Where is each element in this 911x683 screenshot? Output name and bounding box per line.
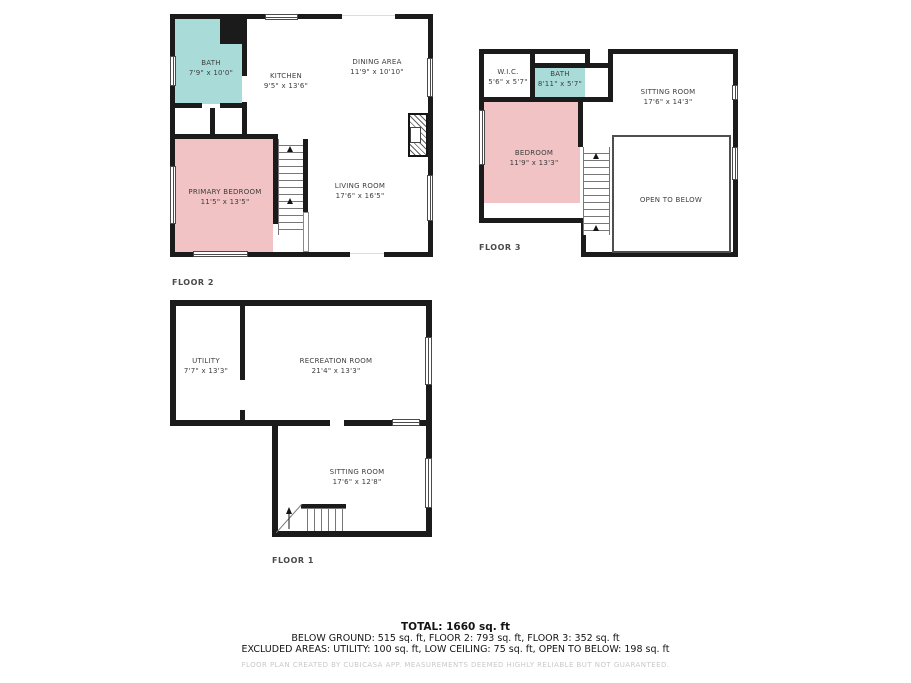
door-opening (240, 380, 245, 410)
room-name: LIVING ROOM (335, 182, 385, 190)
window (479, 110, 485, 165)
room-dims: 5'6" x 5'7" (488, 78, 527, 86)
stair-direction-arrow (593, 225, 599, 231)
window (392, 419, 420, 426)
wall-segment (170, 300, 176, 426)
stair-winder-and-arrow (276, 504, 306, 533)
door-opening (242, 76, 247, 102)
room-dims: 17'6" x 12'8" (333, 478, 382, 486)
creator-credit: FLOOR PLAN CREATED BY CUBICASA APP. MEAS… (0, 661, 911, 669)
wall-opening (350, 252, 384, 257)
room-dims: 17'6" x 16'5" (336, 192, 385, 200)
room-label-dining-area: DINING AREA 11'9" x 10'10" (350, 57, 404, 77)
door-opening (330, 420, 344, 426)
wall-segment (479, 218, 586, 223)
window (427, 58, 433, 97)
room-label-bath-floor2: BATH 7'9" x 10'0" (189, 58, 233, 78)
room-name: SITTING ROOM (330, 468, 385, 476)
wall-segment (608, 49, 613, 102)
floor3-label: FLOOR 3 (479, 243, 521, 252)
window (170, 166, 176, 224)
wall-segment (303, 139, 308, 212)
room-dims: 9'5" x 13'6" (264, 82, 308, 90)
room-name: RECREATION ROOM (300, 357, 373, 365)
room-dims: 17'6" x 14'3" (644, 98, 693, 106)
staircase (583, 147, 610, 235)
wall-segment (578, 102, 583, 147)
room-label-utility: UTILITY 7'7" x 13'3" (184, 356, 228, 376)
window (427, 175, 433, 221)
fireplace (408, 113, 428, 157)
stair-direction-arrow (287, 146, 293, 152)
wall-segment (479, 97, 613, 102)
floor2-label: FLOOR 2 (172, 278, 214, 287)
staircase (301, 508, 346, 531)
window (265, 14, 298, 20)
room-label-sitting-floor1: SITTING ROOM 17'6" x 12'8" (330, 467, 385, 487)
window (193, 251, 248, 257)
floor1-plan: UTILITY 7'7" x 13'3" RECREATION ROOM 21'… (170, 300, 432, 537)
wall-segment (220, 103, 247, 108)
window (732, 147, 738, 180)
room-label-living-room: LIVING ROOM 17'6" x 16'5" (335, 181, 385, 201)
room-dims: 7'9" x 10'0" (189, 69, 233, 77)
room-name: OPEN TO BELOW (640, 196, 702, 204)
room-label-recreation-room: RECREATION ROOM 21'4" x 13'3" (300, 356, 373, 376)
fireplace-box (410, 127, 421, 143)
room-dims: 21'4" x 13'3" (312, 367, 361, 375)
area-summary: TOTAL: 1660 sq. ft BELOW GROUND: 515 sq.… (0, 621, 911, 655)
room-label-kitchen: KITCHEN 9'5" x 13'6" (264, 71, 308, 91)
room-label-bedroom-floor3: BEDROOM 11'9" x 13'3" (510, 148, 559, 168)
wall-segment (170, 134, 277, 139)
floor1-label: FLOOR 1 (272, 556, 314, 565)
room-name: BATH (201, 59, 221, 67)
window (732, 85, 738, 100)
stair-railing (303, 212, 309, 252)
wall-segment (530, 63, 613, 68)
room-dims: 11'9" x 13'3" (510, 159, 559, 167)
window (425, 458, 432, 508)
wall-segment (530, 49, 535, 102)
floor3-plan: W.I.C. 5'6" x 5'7" BATH 8'11" x 5'7" SIT… (479, 49, 738, 257)
room-label-primary-bedroom: PRIMARY BEDROOM 11'5" x 13'5" (188, 187, 261, 207)
room-label-sitting-floor3: SITTING ROOM 17'6" x 14'3" (641, 87, 696, 107)
room-name: KITCHEN (270, 72, 302, 80)
room-name: BEDROOM (515, 149, 553, 157)
staircase (278, 139, 304, 235)
room-name: DINING AREA (352, 58, 401, 66)
floor-areas: BELOW GROUND: 515 sq. ft, FLOOR 2: 793 s… (0, 634, 911, 645)
excluded-areas: EXCLUDED AREAS: UTILITY: 100 sq. ft, LOW… (0, 645, 911, 656)
window (425, 337, 432, 385)
room-name: PRIMARY BEDROOM (188, 188, 261, 196)
room-label-wic: W.I.C. 5'6" x 5'7" (488, 67, 527, 87)
room-name: W.I.C. (497, 68, 518, 76)
room-name: SITTING ROOM (641, 88, 696, 96)
room-label-open-to-below: OPEN TO BELOW (640, 195, 702, 205)
wall-segment (608, 49, 738, 54)
room-name: UTILITY (192, 357, 220, 365)
stair-direction-arrow (593, 153, 599, 159)
window (170, 56, 176, 86)
wall-segment (170, 103, 202, 108)
room-label-bath-floor3: BATH 8'11" x 5'7" (538, 69, 582, 89)
room-dims: 8'11" x 5'7" (538, 80, 582, 88)
room-dims: 7'7" x 13'3" (184, 367, 228, 375)
floor2-plan: BATH 7'9" x 10'0" KITCHEN 9'5" x 13'6" D… (170, 14, 433, 257)
wall-segment (170, 300, 432, 306)
room-dims: 11'9" x 10'10" (350, 68, 404, 76)
floor-plan-canvas: BATH 7'9" x 10'0" KITCHEN 9'5" x 13'6" D… (0, 0, 911, 683)
room-dims: 11'5" x 13'5" (201, 198, 250, 206)
chimney-block (220, 14, 244, 44)
stair-direction-arrow (287, 198, 293, 204)
wall-opening (342, 14, 395, 19)
room-name: BATH (550, 70, 570, 78)
